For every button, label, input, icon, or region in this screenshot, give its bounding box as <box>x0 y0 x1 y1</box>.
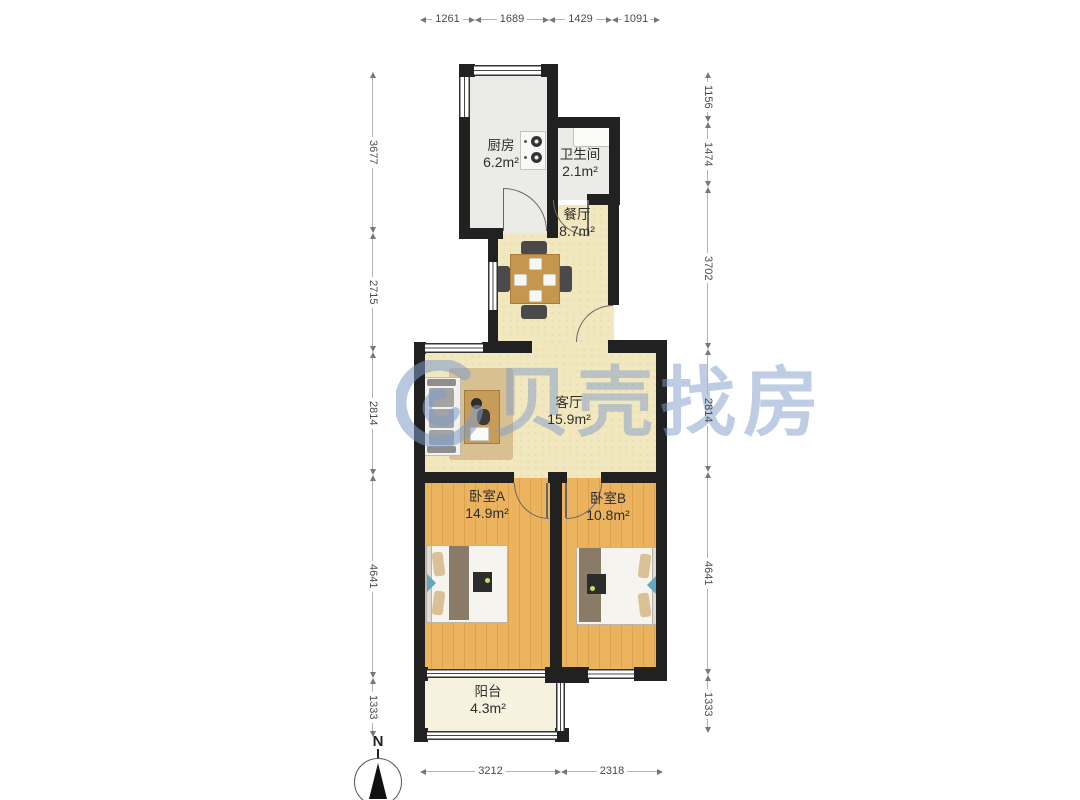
dim-label: 2318 <box>597 766 627 777</box>
wall <box>601 472 667 483</box>
dimension-line <box>707 589 708 669</box>
wall <box>414 342 425 742</box>
dimension-line <box>481 19 497 20</box>
plate <box>543 274 556 286</box>
room-name: 卧室A <box>432 489 542 505</box>
wall <box>414 667 428 681</box>
dining-chair <box>558 266 572 292</box>
room-name: 卫生间 <box>525 147 635 163</box>
plate <box>514 274 527 286</box>
window <box>427 731 557 740</box>
room-label-bedroom-b: 卧室B10.8m² <box>553 491 663 523</box>
window <box>588 669 634 679</box>
sofa-cushion <box>429 430 454 445</box>
dim-label: 1474 <box>702 139 713 169</box>
arrowhead-icon <box>654 17 660 23</box>
dimension-chain-top: 1261168914291091 <box>420 13 660 26</box>
dimension-line <box>707 355 708 395</box>
dimension-chain-left: 36772715281446411333 <box>365 72 380 737</box>
dim-label: 2715 <box>367 277 378 307</box>
dimension-segment: 4641 <box>365 475 380 678</box>
dimension-segment: 1333 <box>700 675 715 733</box>
duvet <box>449 546 469 620</box>
dimension-line <box>372 684 373 692</box>
pillow <box>638 553 652 578</box>
room-area: 14.9m² <box>432 505 542 521</box>
dimension-segment: 1689 <box>475 13 549 26</box>
north-compass: N <box>351 735 405 800</box>
window <box>474 65 541 76</box>
dimension-line <box>372 481 373 561</box>
dim-label: 1261 <box>432 14 462 25</box>
pillow <box>432 551 446 576</box>
room-name: 餐厅 <box>522 207 632 223</box>
bed-a <box>426 545 508 623</box>
room-area: 2.1m² <box>525 163 635 179</box>
dimension-line <box>707 193 708 253</box>
dimension-segment: 2814 <box>700 349 715 472</box>
sofa-cushion <box>429 388 454 407</box>
wall <box>587 194 620 205</box>
dimension-line <box>707 170 708 181</box>
dimension-line <box>372 239 373 277</box>
wall <box>488 341 532 353</box>
dim-label: 2814 <box>367 398 378 428</box>
arrowhead-icon <box>657 769 663 775</box>
dimension-segment: 2715 <box>365 233 380 352</box>
sofa-armrest <box>427 379 456 386</box>
dimension-segment: 2814 <box>365 352 380 475</box>
dimension-chain-right: 115614743702281446411333 <box>700 72 715 733</box>
table-item <box>477 409 490 425</box>
coffee-table <box>464 390 500 444</box>
dimension-segment: 1156 <box>700 72 715 122</box>
dimension-line <box>372 168 373 227</box>
room-area: 8.7m² <box>522 223 632 239</box>
dimension-segment: 3702 <box>700 187 715 349</box>
dimension-line <box>506 771 555 772</box>
dimension-segment: 4641 <box>700 472 715 675</box>
wall <box>634 667 667 681</box>
bedroom-a-door-leaf <box>546 483 548 518</box>
window <box>427 669 545 678</box>
dimension-segment: 1429 <box>549 13 612 26</box>
sofa-cushion <box>429 409 454 428</box>
dimension-line <box>707 478 708 558</box>
dim-label: 1333 <box>367 692 378 722</box>
room-label-balcony: 阳台4.3m² <box>433 684 543 716</box>
dimension-line <box>707 128 708 139</box>
room-label-living: 客厅15.9m² <box>514 395 624 427</box>
room-area: 4.3m² <box>433 700 543 716</box>
dimension-line <box>707 283 708 343</box>
sofa-armrest <box>427 446 456 453</box>
dim-label: 3677 <box>367 137 378 167</box>
dining-chair <box>521 305 547 319</box>
dimension-line <box>372 308 373 346</box>
wall <box>459 116 470 238</box>
dimension-segment: 3677 <box>365 72 380 233</box>
tray-dot <box>485 578 490 583</box>
dim-label: 4641 <box>367 561 378 591</box>
north-label: N <box>351 735 405 749</box>
bed-tray <box>587 574 606 594</box>
dimension-line <box>426 771 475 772</box>
dimension-segment: 1333 <box>365 678 380 737</box>
plate <box>529 290 542 302</box>
table-item <box>471 398 482 409</box>
dim-label: 2814 <box>702 395 713 425</box>
pillow <box>638 592 652 617</box>
room-area: 15.9m² <box>514 411 624 427</box>
wall <box>459 64 475 77</box>
dimension-line <box>567 771 597 772</box>
sofa <box>424 377 461 456</box>
dim-label: 1689 <box>497 14 527 25</box>
dimension-line <box>372 429 373 469</box>
dimension-line <box>707 719 708 727</box>
dimension-segment: 1091 <box>612 13 660 26</box>
dimension-segment: 1261 <box>420 13 475 26</box>
dimension-line <box>372 592 373 672</box>
dim-label: 3212 <box>475 766 505 777</box>
room-label-dining: 餐厅8.7m² <box>522 207 632 239</box>
compass-circle <box>354 758 402 800</box>
compass-needle-icon <box>369 763 387 799</box>
dining-table <box>510 254 560 304</box>
dim-label: 3702 <box>702 253 713 283</box>
window <box>425 343 483 353</box>
dimension-line <box>527 19 543 20</box>
pillow <box>432 590 446 615</box>
window <box>556 683 565 731</box>
dimension-line <box>372 723 373 731</box>
dim-label: 1429 <box>565 14 595 25</box>
dimension-line <box>596 19 606 20</box>
room-label-bathroom: 卫生间2.1m² <box>525 147 635 179</box>
dimension-line <box>627 771 657 772</box>
dimension-line <box>707 681 708 689</box>
dimension-line <box>555 19 565 20</box>
dim-label: 1333 <box>702 689 713 719</box>
bed-b <box>576 547 658 625</box>
dim-label: 1091 <box>621 14 651 25</box>
window <box>459 77 470 117</box>
bathroom-sink <box>573 126 612 147</box>
tray-dot <box>590 586 595 591</box>
wall <box>488 228 498 264</box>
plate <box>529 258 542 270</box>
dimension-segment: 2318 <box>561 765 663 778</box>
dimension-segment: 1474 <box>700 122 715 187</box>
room-label-bedroom-a: 卧室A14.9m² <box>432 489 542 521</box>
dining-chair <box>521 241 547 255</box>
room-name: 卧室B <box>553 491 663 507</box>
dimension-line <box>707 426 708 466</box>
window <box>488 262 498 310</box>
dimension-segment: 3212 <box>420 765 561 778</box>
dim-label: 1156 <box>702 82 713 112</box>
room-name: 客厅 <box>514 395 624 411</box>
table-card <box>470 427 489 441</box>
dim-label: 4641 <box>702 558 713 588</box>
room-name: 阳台 <box>433 684 543 700</box>
arrowhead-icon <box>705 727 711 733</box>
dining-chair <box>496 266 510 292</box>
wall <box>414 472 514 483</box>
wall <box>545 667 589 683</box>
floorplan-canvas: 贝壳找房 N 厨房6.2m²卫生间2.1m²餐厅8.7m²客厅15.9m²卧室A… <box>0 0 1080 800</box>
dimension-line <box>372 78 373 137</box>
dimension-chain-bottom: 32122318 <box>420 765 663 778</box>
wall <box>414 728 428 742</box>
room-area: 10.8m² <box>553 507 663 523</box>
compass-stem <box>377 749 379 758</box>
dimension-line <box>372 358 373 398</box>
